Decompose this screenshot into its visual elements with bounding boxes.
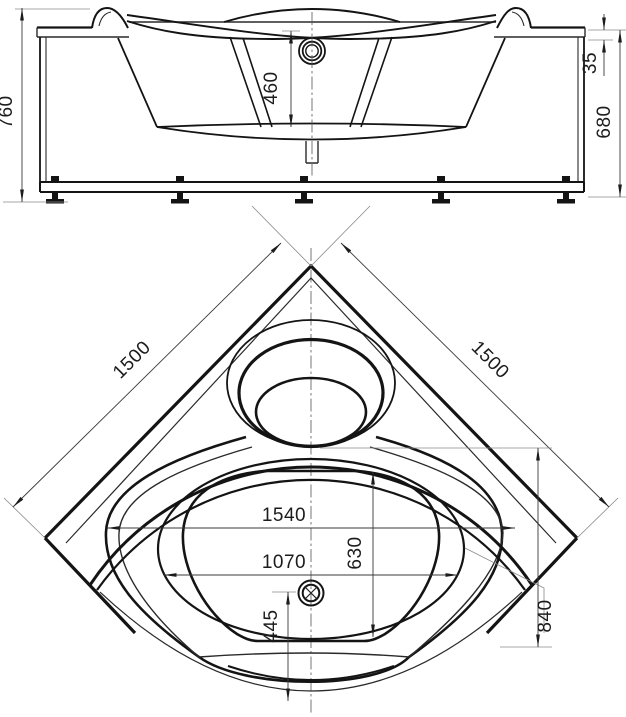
drawing-sheet: 760 460 35 680 <box>0 0 626 717</box>
dim-rim-offset: 35 <box>580 14 626 76</box>
dim-text-460: 460 <box>261 71 282 104</box>
tub-outer-walls <box>118 38 505 127</box>
basin-wall-right <box>350 37 392 127</box>
front-view: 760 460 35 680 <box>0 8 626 204</box>
corner-cap-right <box>497 8 531 28</box>
rim-sweep-b <box>127 15 496 39</box>
corner-cap-right-inner <box>512 12 524 26</box>
dim-text-1500-right: 1500 <box>467 337 513 383</box>
drain <box>299 581 324 606</box>
dim-text-680: 680 <box>594 105 615 138</box>
deck-endcaps <box>37 28 585 38</box>
rim-sweep-a <box>127 15 496 39</box>
dim-text-840: 840 <box>535 599 556 632</box>
dim-drain-offset: 445 <box>261 592 296 701</box>
dim-text-1070: 1070 <box>262 552 306 573</box>
adjustable-feet <box>46 176 575 204</box>
basin-floor <box>157 124 466 128</box>
bowl-bottom <box>157 127 466 140</box>
dim-text-1500-left: 1500 <box>109 337 155 383</box>
dim-side-left: 1500 <box>4 206 311 538</box>
dim-text-630: 630 <box>345 536 366 569</box>
dim-text-35: 35 <box>580 52 601 74</box>
corner-cap-left-inner <box>99 12 111 26</box>
technical-drawing: 760 460 35 680 <box>0 0 626 717</box>
dim-side-right: 1500 <box>311 206 618 538</box>
dim-text-1540: 1540 <box>262 505 306 526</box>
dim-text-760: 760 <box>0 95 17 128</box>
corner-cap-left <box>92 8 128 28</box>
dim-basin-length: 630 <box>345 472 373 637</box>
plan-view: 1500 1500 1540 1070 630 445 <box>4 206 618 714</box>
support-frame <box>40 182 584 192</box>
dim-text-445: 445 <box>261 609 282 642</box>
